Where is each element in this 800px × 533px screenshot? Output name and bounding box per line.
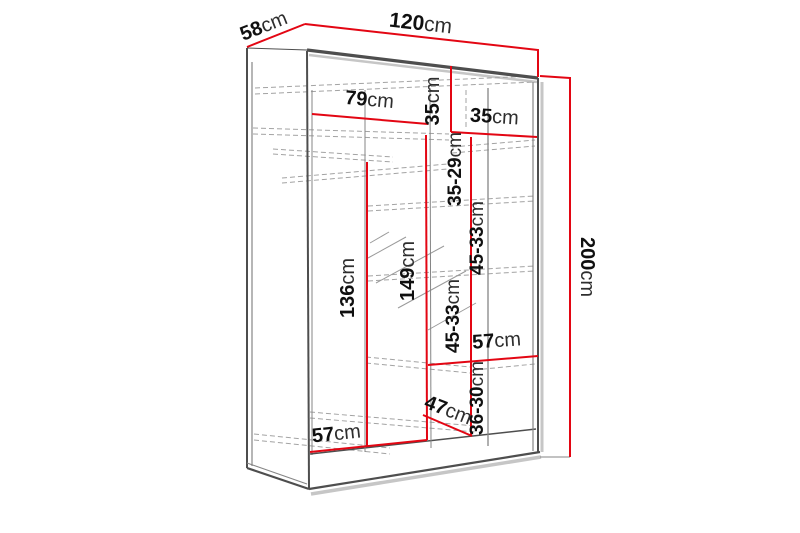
shelf-line-3b (366, 363, 470, 373)
left-panel-inner-edge (307, 51, 309, 489)
hidden-lines (253, 76, 535, 454)
left-top-shelf-edge-2 (253, 134, 449, 140)
dim-line-height-top-tick (540, 76, 570, 78)
dim-line-left-compartment-width (312, 114, 428, 124)
dim-label-middle-interior-height: 149cm (397, 241, 419, 301)
mirror-stroke (370, 232, 389, 243)
dim-label-shelf-column-width: 35cm (469, 105, 519, 130)
dim-label-top-compartment-height: 35cm (422, 77, 444, 126)
left-bottom-edge (247, 468, 309, 489)
top-panel-back-edge-2 (255, 82, 535, 94)
dim-line-middle-interior-height (426, 135, 427, 440)
wardrobe-diagram-canvas: 58cm 120cm 200cm 79cm 35cm 35cm 35-29cm … (0, 0, 800, 533)
left-bottom-edge-thin (247, 463, 307, 484)
wardrobe-dimension-diagram: 58cm 120cm 200cm 79cm 35cm 35cm 35-29cm … (0, 0, 800, 533)
dimension-lines (247, 24, 570, 457)
dimension-labels: 58cm 120cm 200cm 79cm 35cm 35cm 35-29cm … (237, 7, 598, 447)
dim-label-bottom-interior-width: 57cm (311, 421, 362, 448)
hanging-rail-bottom (273, 154, 393, 162)
dim-label-shoe-shelf-width: 57cm (471, 328, 521, 353)
shelf-line-2 (368, 266, 535, 276)
top-front-edge (307, 50, 538, 78)
top-face-left-edge (247, 48, 307, 50)
plinth-bottom-edge (309, 452, 540, 489)
dim-label-left-interior-height: 136cm (337, 258, 359, 318)
dim-label-height: 200cm (576, 237, 598, 297)
dim-label-bottom-compartment-height: 36-30cm (467, 361, 488, 435)
left-top-shelf-edge (253, 128, 449, 134)
dim-label-shelf-spacing-top: 35-29cm (445, 132, 466, 206)
plinth-shadow (311, 457, 541, 494)
hanging-rail-top (273, 149, 393, 157)
dim-label-left-compartment-width: 79cm (344, 87, 395, 113)
dim-label-shelf-spacing-lower: 45-33cm (443, 279, 464, 353)
dim-label-shelf-spacing-middle: 45-33cm (467, 201, 488, 275)
